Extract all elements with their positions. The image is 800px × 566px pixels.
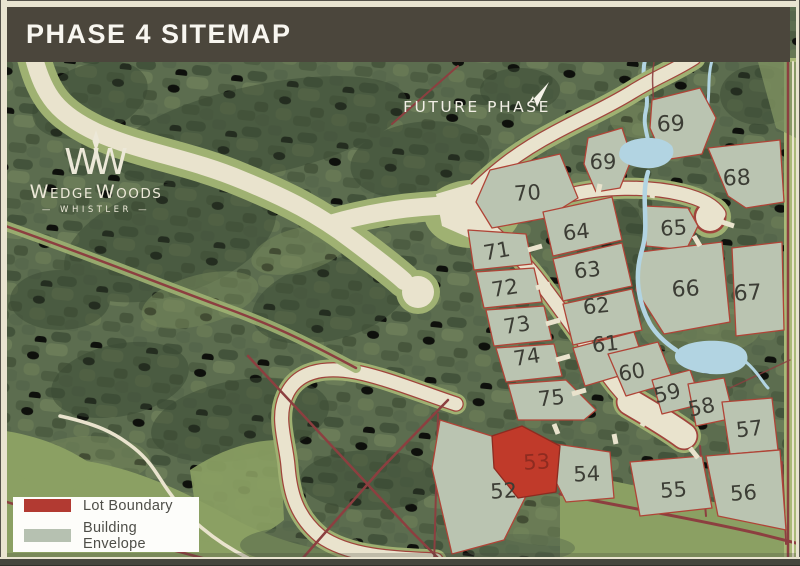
lot-label-61-9: 61 <box>591 331 620 358</box>
lot-label-69-17: 69 <box>656 112 685 138</box>
legend-row-building-envelope: Building Envelope <box>13 520 199 552</box>
lot-boundary-label: Lot Boundary <box>83 498 173 514</box>
lot-label-66-14: 66 <box>671 276 700 302</box>
lot-label-56-4: 56 <box>729 480 757 506</box>
sitemap-canvas: 5253545556575859606162636465666768696970… <box>0 0 800 566</box>
logo-monogram-w2: W <box>92 142 128 183</box>
lot-label-67-15: 67 <box>733 280 762 306</box>
future-phase-label: FUTURE PHASE <box>403 98 551 116</box>
lot-label-65-13: 65 <box>660 215 688 240</box>
lot-label-52-0: 52 <box>490 478 518 503</box>
lot-label-55-3: 55 <box>659 477 687 503</box>
lot-label-75-24: 75 <box>537 385 566 412</box>
lot-label-63-11: 63 <box>573 257 602 284</box>
bottom-shade <box>0 553 800 559</box>
lot-label-74-23: 74 <box>512 343 542 371</box>
lot-label-57-5: 57 <box>735 416 764 443</box>
building-envelope-label: Building Envelope <box>83 520 199 552</box>
header-bar: PHASE 4 SITEMAP <box>7 7 790 62</box>
lot-label-68-16: 68 <box>722 166 751 192</box>
lot-label-73-22: 73 <box>502 311 532 339</box>
lot-label-64-12: 64 <box>562 219 591 246</box>
logo-subtitle: — WHISTLER — <box>42 205 150 215</box>
building-envelope-swatch <box>24 529 71 542</box>
lot-label-72-21: 72 <box>490 274 520 302</box>
lot-label-62-10: 62 <box>582 293 611 320</box>
lot-label-54-2: 54 <box>573 462 601 487</box>
legend: Lot Boundary Building Envelope <box>13 497 199 552</box>
legend-row-lot-boundary: Lot Boundary <box>13 498 199 514</box>
lot-label-53-1: 53 <box>523 449 551 474</box>
lot-boundary-swatch <box>24 499 71 512</box>
lot-label-71-20: 71 <box>482 237 512 265</box>
page-title: PHASE 4 SITEMAP <box>7 7 790 62</box>
lot-label-69-18: 69 <box>590 150 617 174</box>
lot-label-60-8: 60 <box>617 358 647 386</box>
lot-label-70-19: 70 <box>513 180 541 206</box>
phase4-sitemap: 5253545556575859606162636465666768696970… <box>0 0 800 566</box>
